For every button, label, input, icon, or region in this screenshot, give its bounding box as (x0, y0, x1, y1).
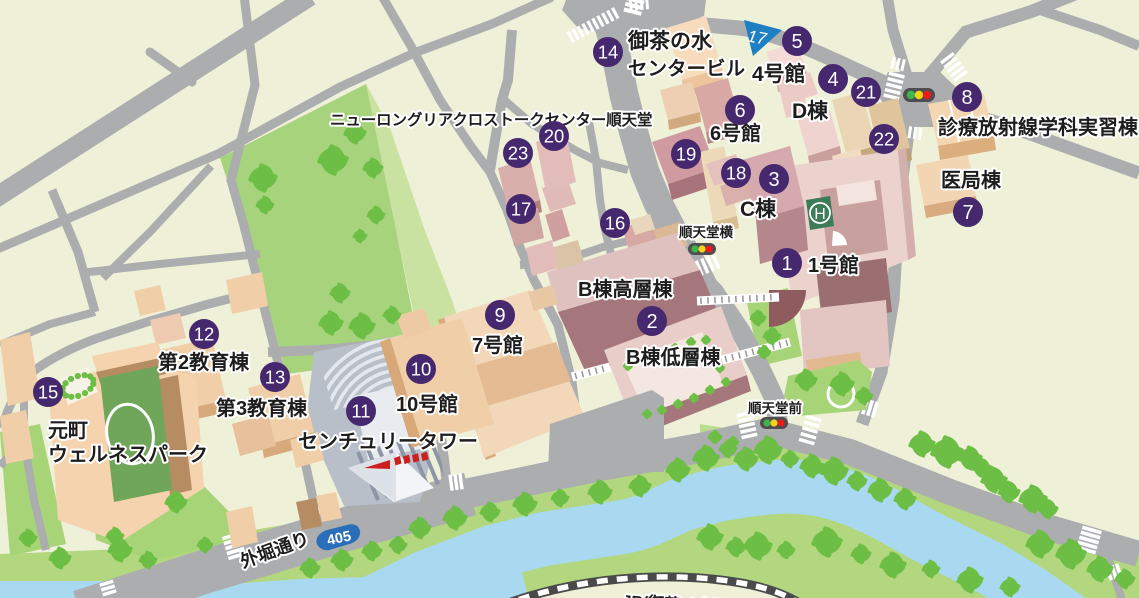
svg-text:16: 16 (605, 212, 626, 233)
svg-text:5: 5 (791, 31, 802, 53)
svg-text:センチュリータワー: センチュリータワー (298, 430, 478, 453)
svg-text:18: 18 (726, 162, 747, 183)
svg-text:元町: 元町 (48, 420, 88, 442)
svg-text:4号館: 4号館 (752, 62, 806, 86)
svg-text:1: 1 (781, 253, 792, 275)
svg-text:17: 17 (746, 27, 768, 49)
svg-text:6号館: 6号館 (710, 121, 761, 145)
svg-text:診療放射線学科実習棟: 診療放射線学科実習棟 (938, 115, 1139, 139)
svg-text:B棟高層棟: B棟高層棟 (578, 277, 673, 301)
svg-text:15: 15 (38, 381, 59, 402)
svg-text:21: 21 (856, 81, 877, 102)
svg-text:12: 12 (194, 323, 215, 344)
svg-text:10号館: 10号館 (396, 392, 458, 416)
svg-text:センタービル: センタービル (628, 58, 746, 80)
svg-text:10: 10 (411, 358, 432, 379)
svg-text:4: 4 (827, 69, 838, 91)
svg-text:第3教育棟: 第3教育棟 (216, 396, 308, 420)
svg-text:14: 14 (598, 41, 619, 62)
svg-text:2: 2 (646, 311, 657, 333)
svg-text:13: 13 (265, 366, 286, 387)
svg-text:7号館: 7号館 (472, 333, 523, 357)
svg-text:B棟低層棟: B棟低層棟 (626, 345, 721, 369)
svg-text:御茶の水: 御茶の水 (627, 29, 713, 53)
svg-text:医局棟: 医局棟 (941, 168, 1002, 192)
svg-text:H: H (814, 206, 826, 223)
svg-text:22: 22 (874, 128, 895, 149)
svg-text:第2教育棟: 第2教育棟 (158, 350, 250, 374)
svg-text:9: 9 (494, 305, 505, 327)
svg-text:17: 17 (511, 198, 532, 219)
svg-text:1号館: 1号館 (808, 253, 859, 277)
svg-text:D棟: D棟 (792, 99, 829, 123)
svg-text:3: 3 (768, 169, 779, 191)
svg-text:C棟: C棟 (740, 197, 777, 221)
svg-text:11: 11 (351, 400, 370, 421)
svg-text:23: 23 (508, 142, 529, 163)
svg-text:ニューロングリアクロストークセンター順天堂: ニューロングリアクロストークセンター順天堂 (330, 110, 652, 129)
svg-text:順天堂前: 順天堂前 (748, 400, 802, 416)
svg-text:ウェルネスパーク: ウェルネスパーク (48, 443, 208, 466)
svg-text:8: 8 (961, 87, 972, 109)
svg-text:19: 19 (676, 143, 697, 164)
svg-text:順天堂横: 順天堂横 (679, 224, 733, 240)
svg-text:7: 7 (962, 202, 973, 224)
svg-text:20: 20 (544, 125, 565, 146)
svg-text:6: 6 (734, 100, 745, 122)
